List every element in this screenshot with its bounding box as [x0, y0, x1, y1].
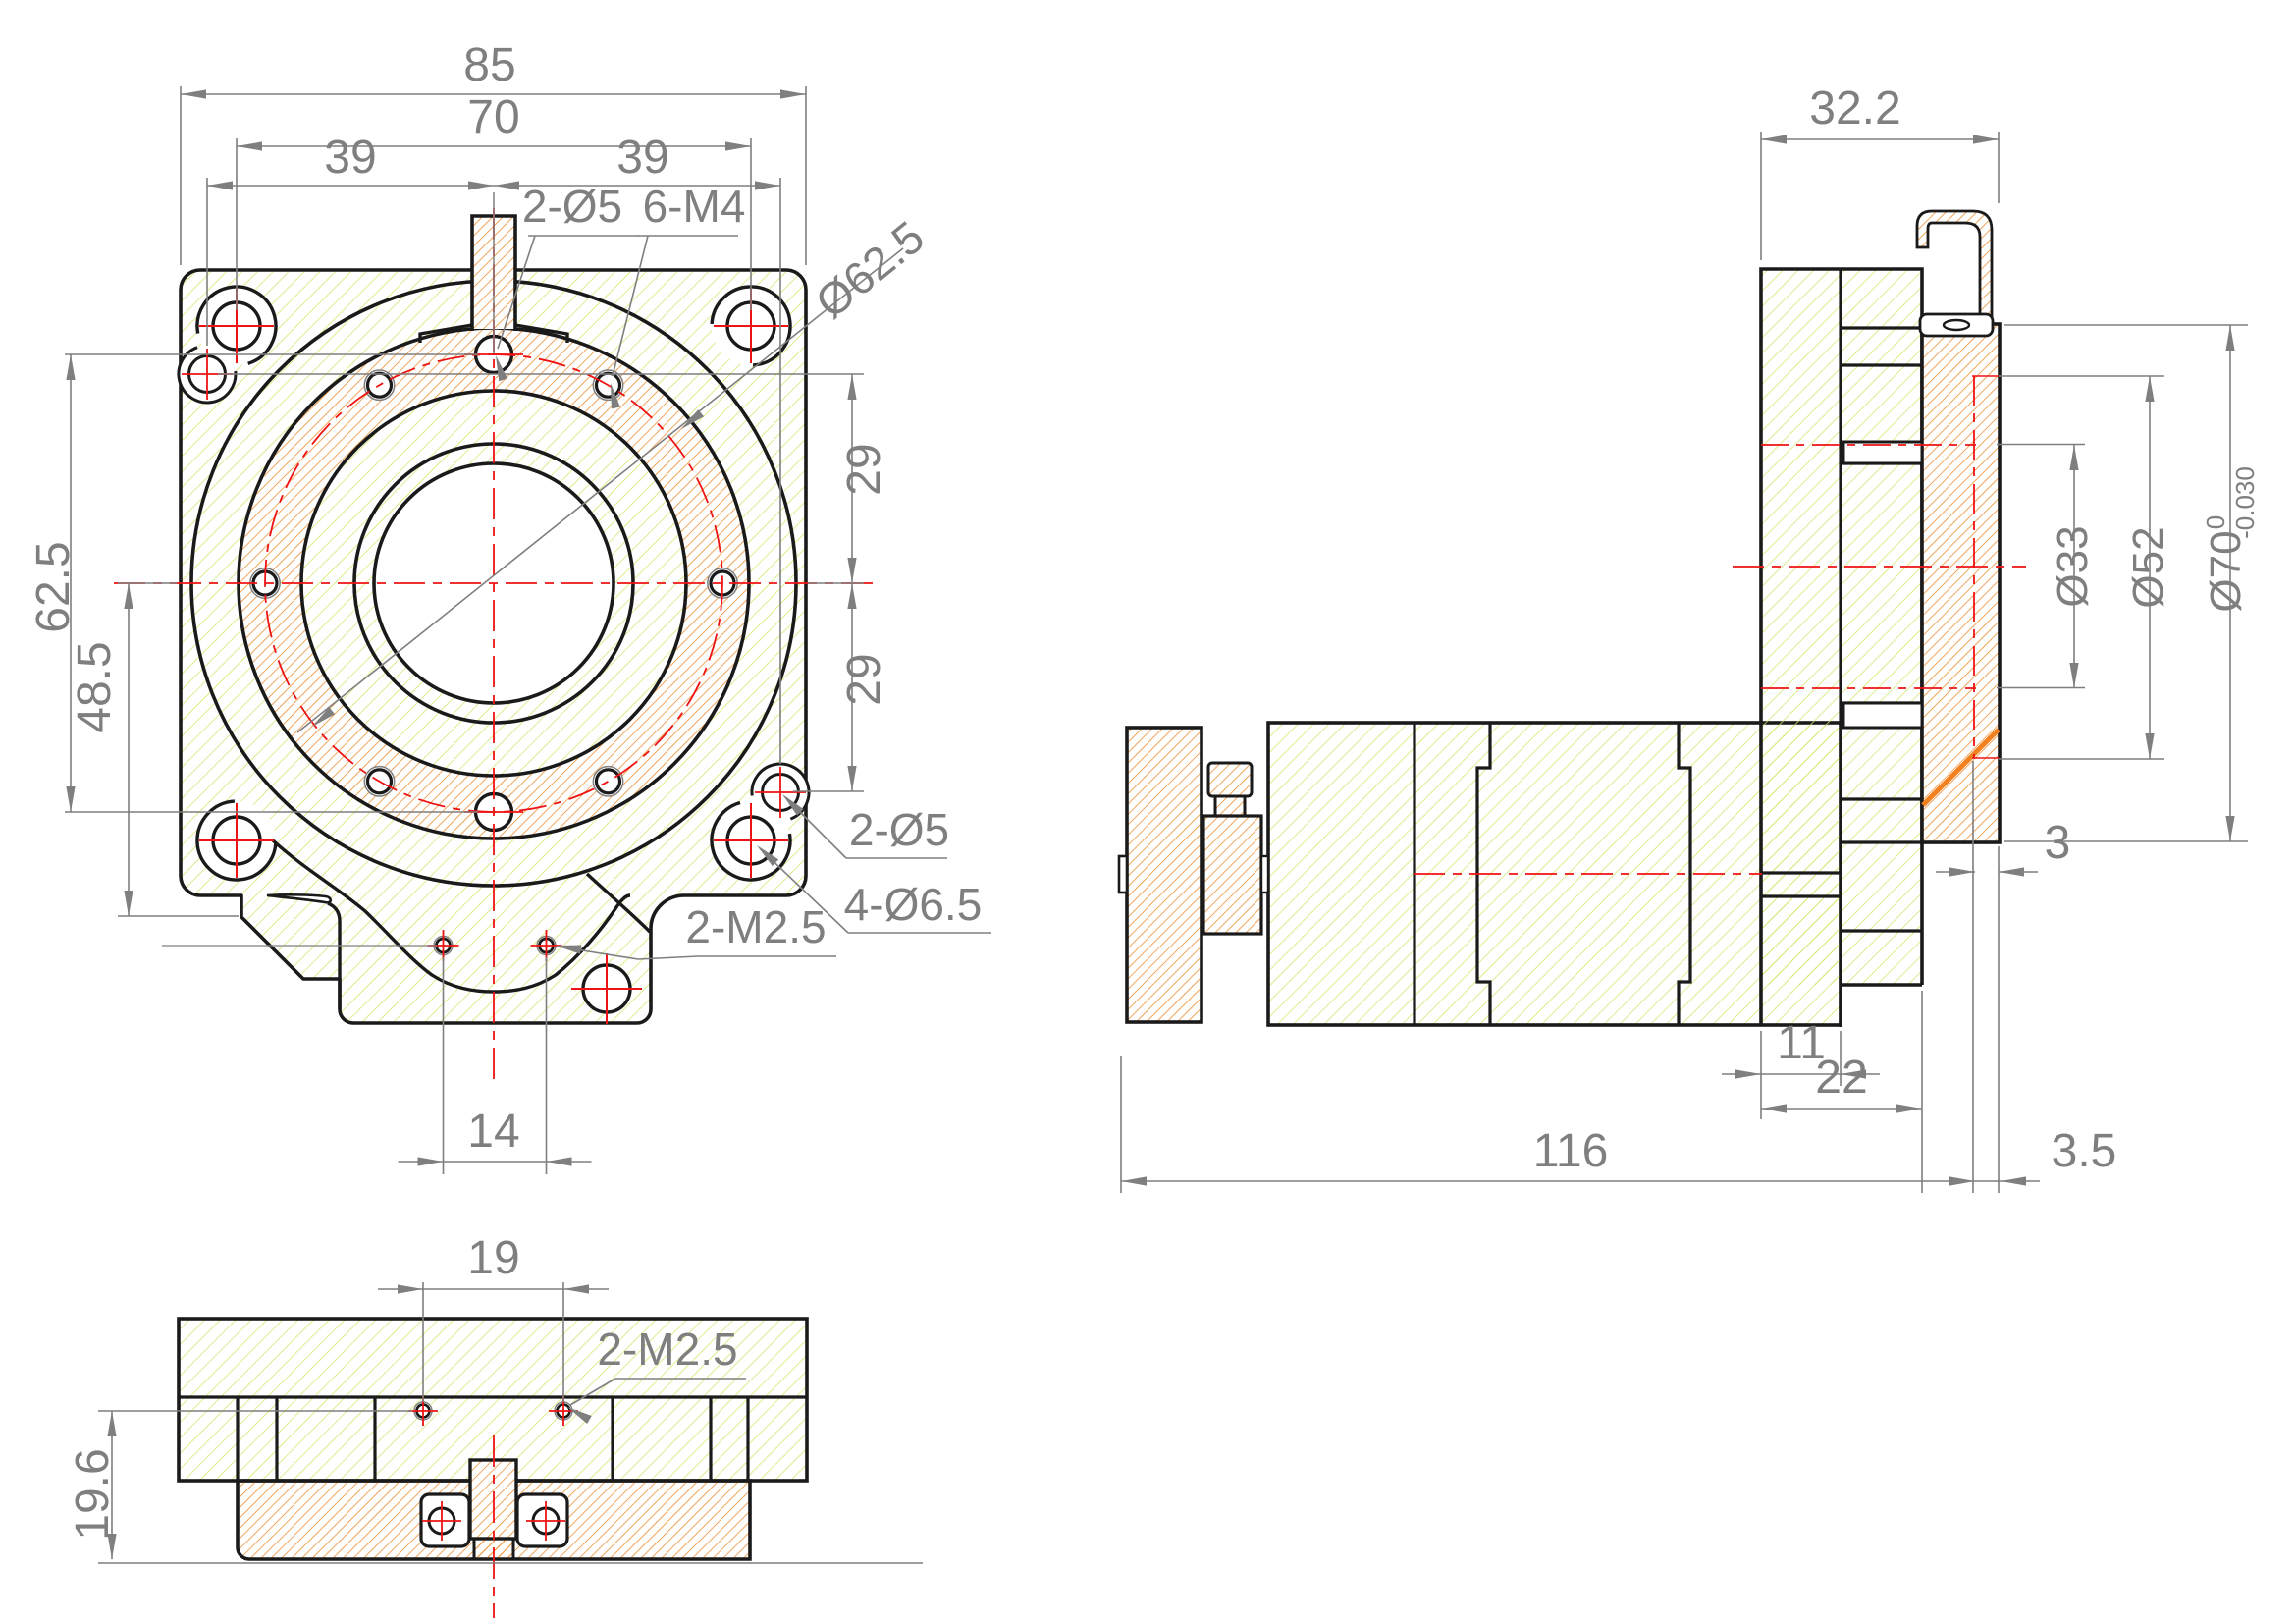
svg-text:2-Ø5: 2-Ø5 — [849, 804, 949, 855]
svg-text:19: 19 — [467, 1232, 519, 1284]
svg-text:Ø70: Ø70 — [2202, 530, 2250, 612]
svg-text:6-M4: 6-M4 — [643, 181, 746, 232]
svg-text:0: 0 — [2201, 515, 2230, 529]
svg-text:39: 39 — [616, 132, 668, 184]
svg-text:29: 29 — [838, 653, 890, 705]
svg-text:85: 85 — [463, 39, 515, 91]
svg-text:Ø52: Ø52 — [2124, 526, 2172, 608]
svg-text:3: 3 — [2045, 817, 2071, 869]
svg-text:2-M2.5: 2-M2.5 — [685, 901, 826, 952]
svg-text:4-Ø6.5: 4-Ø6.5 — [844, 879, 983, 930]
svg-text:62.5: 62.5 — [27, 541, 80, 632]
svg-text:14: 14 — [467, 1106, 519, 1158]
svg-text:116: 116 — [1533, 1125, 1609, 1177]
svg-text:29: 29 — [838, 443, 890, 495]
svg-text:Ø33: Ø33 — [2049, 525, 2097, 607]
svg-text:39: 39 — [324, 132, 376, 184]
svg-text:19.6: 19.6 — [67, 1448, 119, 1540]
svg-text:2-M2.5: 2-M2.5 — [597, 1324, 737, 1375]
svg-text:2-Ø5: 2-Ø5 — [522, 181, 622, 232]
svg-text:-0.030: -0.030 — [2230, 466, 2260, 539]
svg-text:48.5: 48.5 — [69, 641, 121, 732]
svg-text:3.5: 3.5 — [2052, 1125, 2117, 1177]
svg-text:70: 70 — [467, 91, 519, 143]
svg-text:32.2: 32.2 — [1809, 82, 1900, 135]
svg-text:22: 22 — [1815, 1052, 1867, 1104]
